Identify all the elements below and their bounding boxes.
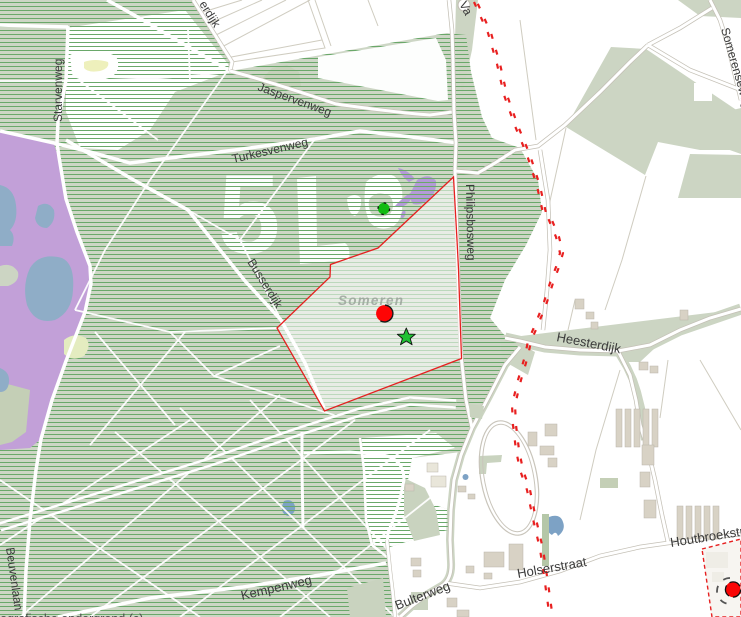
svg-text:Topografische ondergrond (c): Topografische ondergrond (c) (0, 612, 143, 617)
svg-text:Starvenweg: Starvenweg (51, 59, 65, 122)
svg-text:Philipsbosweg: Philipsbosweg (463, 184, 478, 261)
svg-text:Someren: Someren (338, 293, 404, 308)
